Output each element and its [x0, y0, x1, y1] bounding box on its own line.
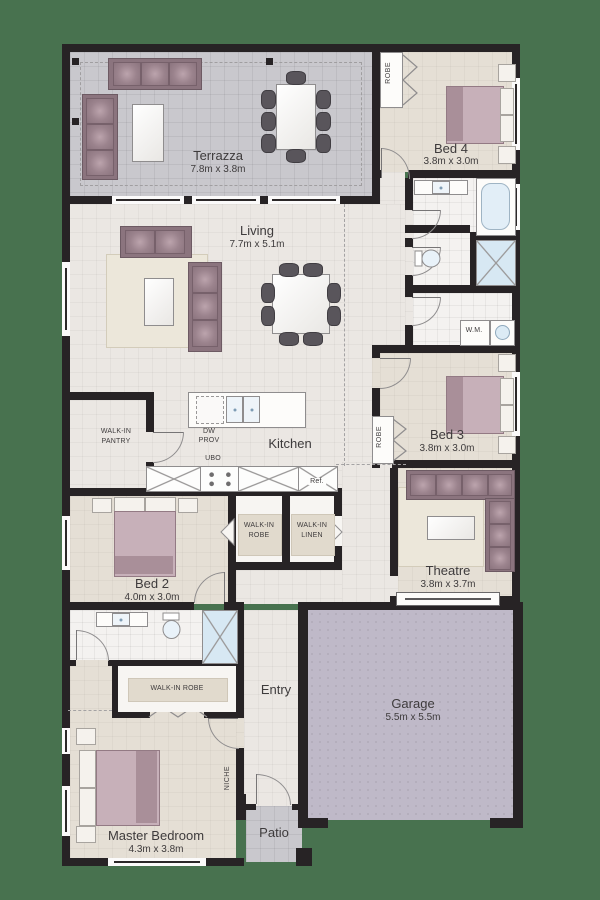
- door-opening: [372, 358, 380, 388]
- pillow: [500, 378, 514, 405]
- door-leaf: [380, 358, 410, 359]
- door-leaf: [153, 432, 183, 433]
- overhead-cupboard: [238, 466, 300, 492]
- bedside-table: [92, 498, 112, 513]
- coffee-table: [427, 516, 475, 540]
- door-leaf: [381, 148, 382, 178]
- sofa-cushion: [489, 547, 511, 570]
- bifold-door: [392, 418, 407, 462]
- fridge-label: Ref.: [308, 478, 326, 485]
- window: [62, 786, 70, 836]
- window: [268, 196, 340, 204]
- dining-chair: [261, 306, 275, 326]
- pantry-label-1: WALK-IN: [101, 428, 131, 435]
- robe-bed3-label: ROBE: [376, 426, 383, 448]
- room-label-bed2: Bed 2: [135, 576, 169, 591]
- dining-chair: [279, 332, 299, 346]
- bathtub-inner: [481, 183, 510, 230]
- bedside-table: [178, 498, 198, 513]
- kitchen-sink: [243, 396, 260, 423]
- wall-segment: [298, 818, 328, 828]
- bedside-table: [76, 728, 96, 745]
- sofa-cushion: [192, 320, 218, 347]
- sofa-cushion: [86, 124, 114, 150]
- wall-segment: [408, 170, 520, 178]
- shower: [202, 610, 238, 664]
- dining-chair: [286, 149, 306, 163]
- window: [62, 262, 70, 336]
- window: [112, 196, 184, 204]
- pillow: [79, 788, 96, 826]
- sofa-cushion: [169, 62, 197, 86]
- dining-chair: [327, 283, 341, 303]
- pillow: [145, 497, 176, 512]
- dw-prov-label-2: PROV: [199, 437, 220, 444]
- pantry-label-2: PANTRY: [102, 438, 131, 445]
- room-label-theatre: Theatre: [426, 563, 471, 578]
- wall-segment: [146, 392, 154, 432]
- room-dims-living: 7.7m x 5.1m: [229, 239, 284, 250]
- room-dims-bed3: 3.8m x 3.0m: [419, 443, 474, 454]
- walkin-robe-label-1: WALK-IN: [244, 522, 274, 529]
- bed-foot: [447, 87, 463, 141]
- sofa-cushion: [86, 150, 114, 176]
- sofa-cushion: [155, 230, 185, 254]
- coffee-table: [144, 278, 174, 326]
- room-label-kitchen: Kitchen: [268, 436, 311, 451]
- room-label-master: Master Bedroom: [108, 828, 204, 843]
- niche-label: NICHE: [224, 766, 231, 790]
- wall-segment: [224, 602, 236, 610]
- dining-chair: [261, 90, 276, 109]
- wall-segment: [296, 848, 312, 866]
- toilet: [160, 612, 183, 640]
- wall-segment: [513, 602, 523, 828]
- wall-segment: [228, 488, 236, 610]
- window: [192, 196, 260, 204]
- bedside-table: [498, 146, 516, 164]
- post: [266, 58, 273, 65]
- floor-hall: [236, 570, 342, 604]
- room-dims-bed2: 4.0m x 3.0m: [124, 592, 179, 603]
- walkin-linen-label-2: LINEN: [301, 532, 323, 539]
- room-label-garage: Garage: [391, 696, 434, 711]
- toilet: [414, 248, 441, 269]
- sofa-cushion: [141, 62, 169, 86]
- sofa-cushion: [192, 266, 218, 293]
- dining-chair: [327, 306, 341, 326]
- dining-table: [272, 274, 330, 334]
- post: [72, 58, 79, 65]
- tv-unit: [396, 592, 500, 606]
- robe-bed4-label: ROBE: [385, 62, 392, 84]
- sofa-cushion: [436, 474, 462, 496]
- room-label-living: Living: [240, 223, 274, 238]
- bed-foot: [136, 751, 157, 823]
- sofa-cushion: [86, 98, 114, 124]
- dining-chair: [303, 332, 323, 346]
- dining-chair: [316, 134, 331, 153]
- wall-segment: [392, 460, 513, 468]
- floor-hall: [372, 204, 405, 353]
- overhead-cupboard: [146, 466, 202, 492]
- wall-segment: [292, 804, 304, 810]
- dining-chair: [261, 283, 275, 303]
- pillow: [500, 405, 514, 432]
- wall-segment: [236, 794, 246, 820]
- walkin-linen-label-1: WALK-IN: [297, 522, 327, 529]
- basin: [432, 181, 450, 194]
- door-leaf: [412, 210, 440, 211]
- wall-segment: [282, 488, 290, 570]
- sofa-cushion: [489, 501, 511, 524]
- pillow: [79, 750, 96, 788]
- dining-chair: [261, 134, 276, 153]
- wall-segment: [298, 602, 308, 828]
- pillow: [114, 497, 145, 512]
- wall-segment: [62, 392, 154, 400]
- dining-chair: [316, 90, 331, 109]
- shower: [476, 240, 516, 286]
- door-leaf: [76, 630, 77, 660]
- wall-segment: [228, 562, 342, 570]
- door-leaf: [224, 572, 225, 602]
- wall-segment: [372, 345, 513, 353]
- outdoor-dining-table: [276, 84, 316, 150]
- dw-prov-label-1: DW: [203, 428, 215, 435]
- bedside-table: [498, 436, 516, 454]
- pillow: [500, 88, 514, 115]
- dining-chair: [316, 112, 331, 131]
- wall-segment: [62, 660, 76, 666]
- washing-machine-label: W.M.: [466, 327, 483, 334]
- wall-segment: [372, 44, 380, 204]
- sofa-cushion: [489, 524, 511, 547]
- wall-segment: [405, 285, 513, 293]
- sofa-cushion: [410, 474, 436, 496]
- wall-segment: [390, 468, 398, 576]
- wall-segment: [490, 818, 523, 828]
- room-label-patio: Patio: [259, 825, 289, 840]
- room-dims-theatre: 3.8m x 3.7m: [420, 579, 475, 590]
- room-dims-bed4: 3.8m x 3.0m: [423, 156, 478, 167]
- kitchen-sink: [226, 396, 243, 423]
- dining-chair: [279, 263, 299, 277]
- bedside-table: [498, 64, 516, 82]
- walkin-robe-label-2: ROBE: [249, 532, 270, 539]
- bedside-table: [498, 354, 516, 372]
- bed-foot: [115, 556, 173, 574]
- sofa-cushion: [125, 230, 155, 254]
- room-dims-master: 4.3m x 3.8m: [128, 844, 183, 855]
- room-label-bed3: Bed 3: [430, 427, 464, 442]
- door-leaf: [256, 774, 257, 804]
- cooktop: [200, 466, 240, 492]
- bed-foot: [447, 377, 463, 431]
- wall-segment: [62, 44, 520, 52]
- window: [108, 858, 206, 866]
- bedside-table: [76, 826, 96, 843]
- dining-chair: [261, 112, 276, 131]
- pillow: [500, 115, 514, 142]
- window: [62, 516, 70, 570]
- floor-plan: ROBE ROBE: [0, 0, 600, 900]
- bulkhead-line: [336, 464, 406, 465]
- sofa-cushion: [113, 62, 141, 86]
- sofa-cushion: [192, 293, 218, 320]
- bulkhead-line: [344, 204, 345, 466]
- basin: [112, 613, 130, 626]
- bifold-door: [402, 54, 418, 106]
- wall-segment: [62, 602, 194, 610]
- dining-chair: [286, 71, 306, 85]
- room-dims-terrazza: 7.8m x 3.8m: [190, 164, 245, 175]
- window: [62, 728, 70, 754]
- dining-chair: [303, 263, 323, 277]
- door-leaf: [412, 297, 440, 298]
- wall-segment: [112, 712, 150, 718]
- bulkhead-line: [68, 710, 112, 711]
- sofa-cushion: [488, 474, 512, 496]
- door-pointer: [220, 518, 235, 546]
- ubo-label: UBO: [205, 455, 221, 462]
- door-leaf: [208, 718, 238, 719]
- master-robe-label: WALK-IN ROBE: [150, 685, 203, 692]
- room-dims-garage: 5.5m x 5.5m: [385, 712, 440, 723]
- post: [72, 118, 79, 125]
- room-label-terrazza: Terrazza: [193, 148, 243, 163]
- room-label-entry: Entry: [261, 682, 291, 697]
- coffee-table: [132, 104, 164, 162]
- laundry-tub-bowl: [495, 325, 510, 340]
- room-label-bed4: Bed 4: [434, 141, 468, 156]
- dishwasher-provision: [196, 396, 224, 424]
- sofa-cushion: [462, 474, 488, 496]
